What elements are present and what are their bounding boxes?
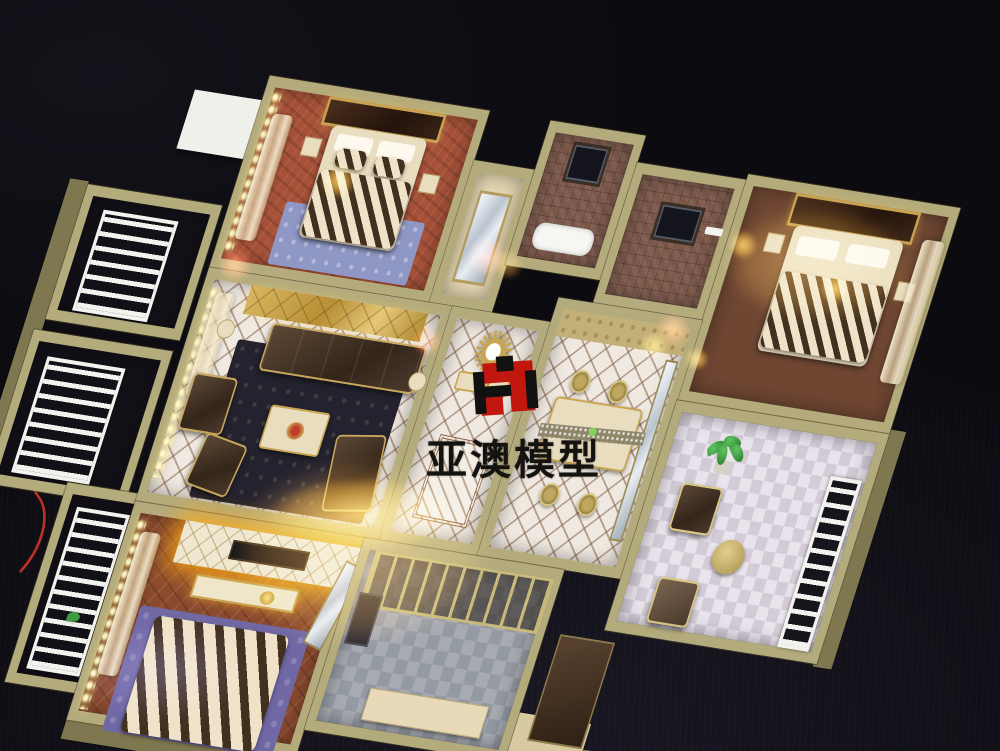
apartment-model xyxy=(38,72,981,751)
dining-chair xyxy=(567,369,593,395)
mirrored-wardrobe xyxy=(452,190,514,286)
floor-medallion xyxy=(412,434,495,528)
dining-chair xyxy=(575,492,601,518)
zebra-blanket xyxy=(300,169,413,250)
round-gold-table xyxy=(707,538,749,577)
lattice-sliding-doors xyxy=(359,551,554,635)
console-table xyxy=(453,370,510,397)
wicker-armchair xyxy=(668,482,724,536)
wicker-armchair xyxy=(646,576,701,628)
nightstand xyxy=(763,232,786,254)
balcony-railing xyxy=(11,356,126,484)
zebra-cushion xyxy=(371,156,407,180)
zebra-cushion xyxy=(333,147,369,171)
dining-chair xyxy=(605,379,631,405)
gold-flowers xyxy=(258,590,276,606)
dining-chair xyxy=(537,482,563,508)
nightstand xyxy=(300,136,323,158)
towel-bar xyxy=(704,226,724,236)
kitchen-counter xyxy=(361,688,490,739)
nightstand xyxy=(417,173,440,195)
balcony-railing xyxy=(72,210,179,323)
window-dark xyxy=(562,141,612,187)
potted-plant xyxy=(700,433,751,477)
open-door-panel xyxy=(529,636,613,747)
pillow xyxy=(794,235,841,261)
pillow xyxy=(844,243,891,269)
refrigerator xyxy=(344,592,384,647)
gold-ornament xyxy=(475,377,491,390)
window-dark xyxy=(650,201,706,246)
tv-screen xyxy=(228,540,310,571)
table-decor xyxy=(284,421,307,441)
dining-table xyxy=(536,396,643,473)
photo-of-apartment-scale-model: 亚澳模型 xyxy=(0,0,1000,751)
damask-wallpaper xyxy=(556,309,691,356)
sunburst-mirror xyxy=(469,328,517,375)
bathtub xyxy=(529,221,597,257)
zebra-blanket xyxy=(759,270,889,363)
